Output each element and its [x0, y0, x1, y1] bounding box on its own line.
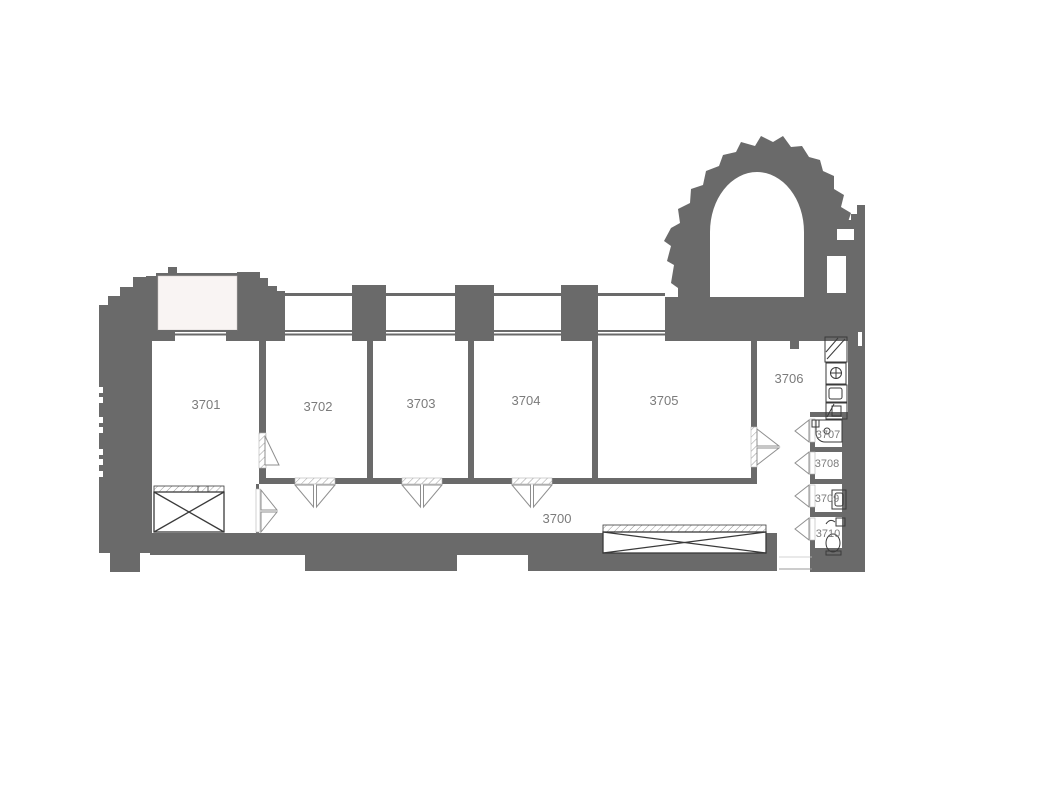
- wardrobe-corridor: [603, 525, 766, 553]
- partition-3705-3706: [751, 341, 757, 427]
- corridor-wall: [442, 478, 512, 484]
- partition-3704-3705: [592, 341, 598, 484]
- wc-left-wall: [810, 473, 815, 484]
- partition-3702-3703: [367, 341, 373, 484]
- wall-bottom-lower: [528, 553, 777, 571]
- room-label-3710: 3710: [816, 528, 840, 540]
- corridor-wall: [335, 478, 402, 484]
- window-pier: [455, 285, 494, 341]
- room-label-3704: 3704: [512, 393, 541, 408]
- window-bay: [494, 293, 561, 336]
- window-bay: [285, 293, 352, 336]
- right-wall-notch: [858, 332, 862, 346]
- room-label-3709: 3709: [815, 493, 839, 505]
- partition-3701-3702: [259, 341, 266, 433]
- room-label-3707: 3707: [816, 429, 840, 441]
- balcony-area: [158, 276, 237, 330]
- door-3709: [795, 485, 815, 507]
- door-3701-corridor: [256, 489, 277, 532]
- room-label-3708: 3708: [815, 458, 839, 470]
- wall-bottom-left-foot: [110, 553, 140, 572]
- wall-left: [99, 277, 152, 535]
- window-bay: [386, 293, 455, 336]
- door-3704-corridor: [512, 478, 552, 507]
- balcony-sill-seg: [158, 332, 175, 341]
- window-pier: [237, 272, 285, 341]
- room-label-3702: 3702: [304, 399, 333, 414]
- wc-left-wall: [810, 506, 815, 517]
- window-pier-base: [146, 332, 160, 341]
- room-label-3705: 3705: [650, 393, 679, 408]
- door-3701-3702: [259, 433, 279, 468]
- wall-right: [848, 341, 865, 555]
- wall-bottom-left-foot: [99, 533, 150, 553]
- door-3710: [795, 518, 815, 540]
- balcony-stub: [168, 267, 177, 274]
- window-pier: [352, 285, 386, 341]
- window-pier: [146, 276, 158, 332]
- window-bay: [598, 293, 665, 336]
- room-label-3706: 3706: [775, 371, 804, 386]
- partition-3703-3704: [468, 341, 474, 484]
- wall-stub: [790, 341, 799, 349]
- wc-right-wall: [842, 417, 850, 555]
- door-3703-corridor: [402, 478, 442, 507]
- door-3705-3706: [751, 427, 779, 467]
- room-label-3701: 3701: [192, 397, 221, 412]
- room-label-3703: 3703: [407, 396, 436, 411]
- floor-plan-page: 3701 3702 3703 3704 3705 3706 3700 3707 …: [0, 0, 1038, 791]
- room-label-3700: 3700: [543, 511, 572, 526]
- wall-bottom-right-block: [810, 548, 865, 572]
- arch-wall-notch: [837, 229, 854, 240]
- door-3708: [795, 452, 815, 474]
- corridor-wall: [552, 478, 757, 484]
- wc-left-wall: [810, 441, 815, 452]
- corridor-wall: [262, 478, 295, 484]
- wardrobe-room-3701: [154, 486, 224, 532]
- wall-bottom-lower: [305, 555, 457, 571]
- arch-structure: [664, 136, 855, 341]
- left-wall-vents: [99, 387, 103, 477]
- arch-window-opening: [827, 256, 846, 293]
- door-3702-corridor: [295, 478, 335, 507]
- room-labels: 3701 3702 3703 3704 3705 3706 3700 3707 …: [192, 371, 841, 540]
- floor-plan-drawing: 3701 3702 3703 3704 3705 3706 3700 3707 …: [0, 0, 1038, 791]
- wc-top-wall: [810, 412, 850, 417]
- window-pier: [561, 285, 598, 341]
- kitchen-fixtures: [825, 337, 847, 419]
